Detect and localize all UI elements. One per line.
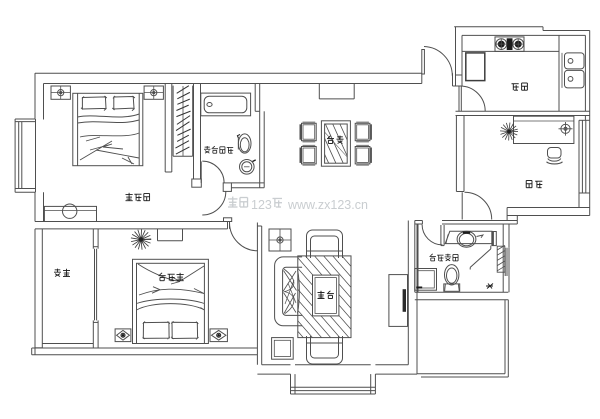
svg-text:123: 123	[251, 198, 272, 212]
svg-text:www.zx123.cn: www.zx123.cn	[287, 198, 368, 212]
